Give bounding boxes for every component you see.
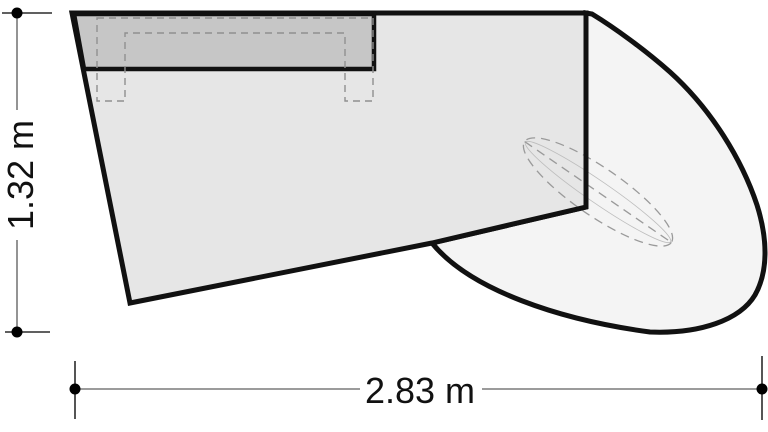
width-dimension: 2.83 m — [70, 356, 768, 420]
floor-plan-canvas: 1.32 m 2.83 m — [0, 0, 768, 432]
top-band — [74, 14, 374, 69]
width-dimension-label: 2.83 m — [365, 370, 475, 411]
height-dimension-label: 1.32 m — [0, 120, 41, 230]
width-dimension-left-marker — [70, 384, 81, 395]
height-dimension-top-marker — [12, 8, 23, 19]
height-dimension-bottom-marker — [12, 327, 23, 338]
height-dimension: 1.32 m — [0, 8, 52, 338]
floor-plan-drawing: 1.32 m 2.83 m — [0, 0, 768, 432]
width-dimension-right-marker — [757, 384, 768, 395]
